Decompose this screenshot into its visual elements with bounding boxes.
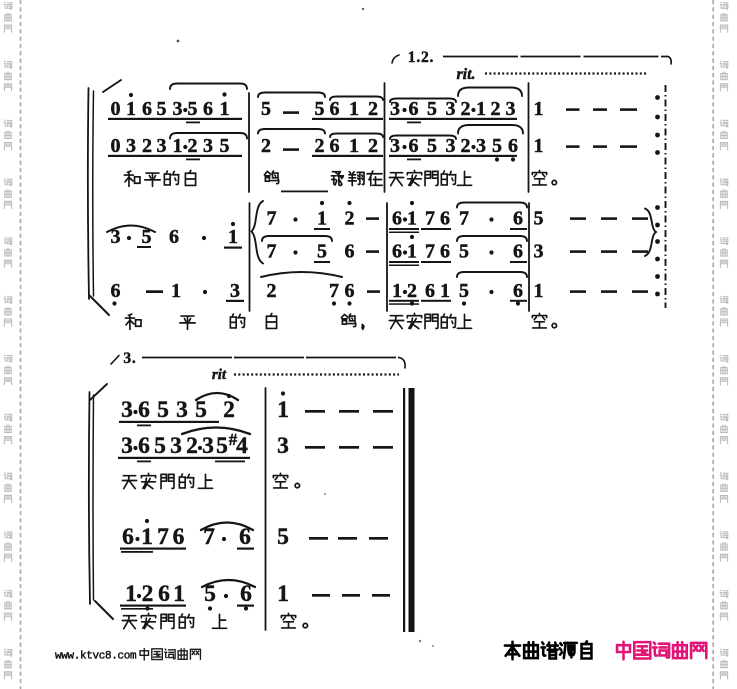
svg-text:3.: 3. — [123, 350, 136, 367]
svg-text:756: 756 — [267, 241, 355, 263]
svg-text:36532123: 36532123 — [390, 98, 516, 120]
svg-text:365352: 365352 — [121, 397, 235, 423]
svg-text:1.2.: 1.2. — [408, 49, 434, 66]
svg-text:712: 712 — [267, 208, 355, 230]
svg-text:5: 5 — [534, 208, 544, 230]
svg-text:613: 613 — [111, 280, 241, 302]
svg-text:22612: 22612 — [261, 135, 378, 157]
svg-text:rit.: rit. — [456, 66, 475, 83]
svg-text:126156: 126156 — [392, 280, 523, 302]
svg-text:3: 3 — [277, 433, 289, 459]
svg-text:www.ktvc8.com: www.ktvc8.com — [55, 651, 137, 663]
svg-text:126156: 126156 — [125, 581, 252, 607]
svg-text:617656: 617656 — [392, 241, 523, 263]
svg-text:276: 276 — [267, 280, 355, 302]
svg-text:1: 1 — [534, 98, 544, 120]
svg-text:617676: 617676 — [122, 524, 251, 550]
svg-text:1: 1 — [534, 280, 544, 302]
svg-text:5: 5 — [277, 524, 289, 550]
svg-text:01653561: 01653561 — [111, 98, 230, 120]
svg-text:1: 1 — [277, 397, 289, 423]
svg-text:55612: 55612 — [261, 98, 378, 120]
svg-text:3: 3 — [534, 241, 544, 263]
svg-text:rit: rit — [212, 367, 227, 383]
svg-text:36532356: 36532356 — [390, 135, 518, 157]
svg-text:1: 1 — [534, 135, 544, 157]
svg-text:1: 1 — [277, 581, 289, 607]
svg-text:617676: 617676 — [392, 208, 523, 230]
svg-text:#: # — [229, 430, 238, 449]
